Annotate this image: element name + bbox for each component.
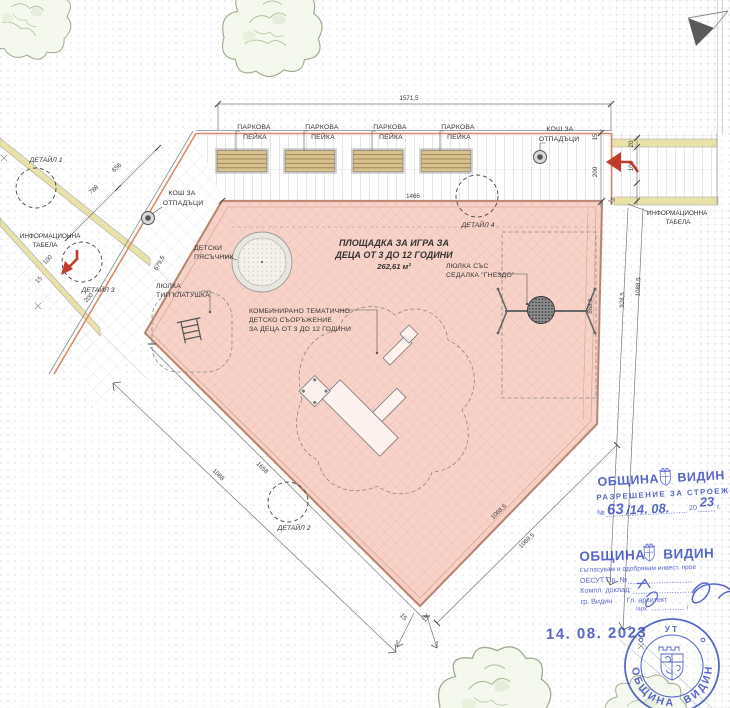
combined-label-l2: ДЕТСКО СЪОРЪЖЕНИЕ bbox=[249, 317, 332, 324]
seesaw-leader-dot bbox=[209, 311, 211, 313]
combined-label-l3: ЗА ДЕЦА ОТ 3 ДО 12 ГОДИНИ bbox=[249, 326, 351, 333]
waste-bin-label-left-l1: КОШ ЗА bbox=[168, 190, 195, 197]
waste-bin-label-left-l2: ОТПАДЪЦИ bbox=[163, 200, 204, 207]
curb-strip-right-bottom bbox=[614, 197, 718, 205]
park-bench-1 bbox=[216, 149, 269, 174]
bench-label-1-l2: ПЕЙКА bbox=[243, 132, 267, 141]
title-area: 262,61 м² bbox=[376, 262, 411, 271]
approval-row1: ОЕСУТ Пр. № bbox=[580, 575, 628, 585]
site-plan-page: 1571,5 1466 788 656 100 200 15 679,5 15 … bbox=[0, 0, 730, 708]
approval-row2: Компл. доклад: bbox=[580, 585, 631, 595]
permit-hand-year: 23 bbox=[698, 494, 715, 510]
detail1-label: ДЕТАЙЛ 1 bbox=[29, 155, 63, 164]
info-board-right-l2: ТАБЕЛА bbox=[666, 219, 692, 226]
waste-bin-icon-right bbox=[534, 151, 547, 164]
detail3-label: ДЕТАЙЛ 3 bbox=[81, 285, 115, 294]
waste-bin-label-right-l1: КОШ ЗА bbox=[546, 126, 573, 133]
bench-label-3-l1: ПАРКОВА bbox=[373, 124, 407, 131]
seal-top-text: УТ bbox=[665, 624, 679, 634]
permit-hand-number: 63 bbox=[607, 501, 625, 519]
bench-label-2-l2: ПЕЙКА bbox=[311, 132, 335, 141]
approval-org-right: ВИДИН bbox=[663, 545, 714, 561]
approval-row3a: гр. Видин bbox=[580, 596, 612, 606]
dim-top-edge: 1466 bbox=[406, 193, 420, 200]
dim-edge-right: 868,5 bbox=[587, 298, 595, 314]
approval-org-left: ОБЩИНА bbox=[579, 547, 646, 564]
nest-swing-label-l1: ЛЮЛКА СЪС bbox=[446, 263, 489, 270]
bench-label-4-l1: ПАРКОВА bbox=[441, 124, 475, 131]
title-line2: ДЕЦА ОТ 3 ДО 12 ГОДИНИ bbox=[334, 250, 453, 260]
combined-label-l1: КОМБИНИРАНО ТЕМАТИЧНО bbox=[249, 308, 350, 315]
dim-right-w1: 200 bbox=[592, 166, 599, 177]
dim-right-s1: 15 bbox=[592, 133, 599, 140]
grid-patch-top-right bbox=[612, 0, 730, 133]
bench-label-3-l2: ПЕЙКА bbox=[379, 132, 403, 141]
nest-swing-leader-dot bbox=[526, 303, 528, 305]
park-bench-3 bbox=[352, 149, 405, 174]
permit-hand-date: /14. 08. bbox=[625, 500, 670, 517]
sandbox-icon bbox=[232, 232, 292, 292]
waste-bin-label-right-l2: ОТПАДЪЦИ bbox=[539, 136, 580, 143]
combined-leader-dot bbox=[376, 352, 378, 354]
nest-swing-label-l2: СЕДАЛКА "ГНЕЗДО" bbox=[446, 272, 515, 279]
info-board-left-l2: ТАБЕЛА bbox=[33, 242, 59, 249]
dim-top: 1571,5 bbox=[400, 95, 419, 102]
permit-year-suffix: г. bbox=[717, 502, 721, 511]
permit-year-prefix: 20 bbox=[689, 503, 697, 512]
seesaw-label-l2: ТИП КЛАТУШКА bbox=[156, 292, 210, 299]
permit-org-right: ВИДИН bbox=[677, 468, 725, 484]
info-board-left-l1: ИНФОРМАЦИОННА bbox=[20, 233, 81, 240]
title-line1: ПЛОЩАДКА ЗА ИГРА ЗА bbox=[339, 238, 449, 248]
park-bench-2 bbox=[284, 149, 337, 174]
detail2-label: ДЕТАЙЛ 2 bbox=[277, 523, 311, 532]
bench-label-4-l2: ПЕЙКА bbox=[447, 132, 471, 141]
bench-label-1-l1: ПАРКОВА bbox=[237, 124, 271, 131]
permit-no-prefix: № bbox=[597, 508, 605, 517]
info-board-right-l1: ИНФОРМАЦИОННА bbox=[647, 210, 708, 217]
dim-right-w3: 20 bbox=[628, 140, 635, 147]
detail4-label: ДЕТАЙЛ 4 bbox=[461, 220, 495, 229]
seesaw-label-l1: ЛЮЛКА bbox=[156, 283, 181, 290]
bench-label-2-l1: ПАРКОВА bbox=[305, 124, 339, 131]
dim-right-mid: 928,5 bbox=[619, 292, 627, 308]
sandbox-label-l1: ДЕТСКИ bbox=[194, 245, 222, 252]
park-bench-4 bbox=[420, 149, 473, 174]
sandbox-label-l2: ПЯСЪЧНИК bbox=[194, 254, 234, 261]
dim-right-out: 1088,5 bbox=[635, 277, 643, 297]
